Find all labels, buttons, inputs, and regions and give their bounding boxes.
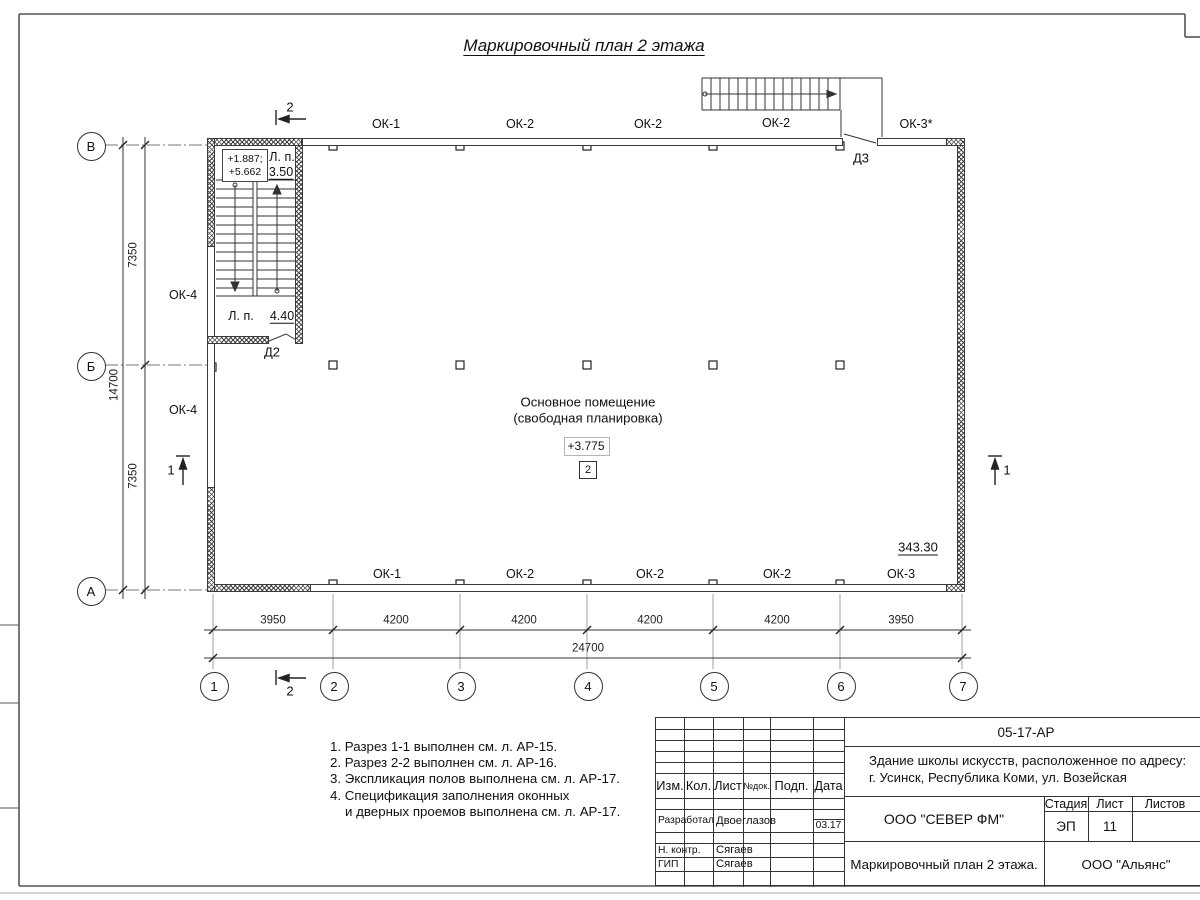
note-1: 1. Разрез 1-1 выполнен см. л. АР-15. [330, 739, 620, 755]
title-block: 05-17-АР Здание школы искусств, располож… [655, 717, 1200, 886]
wall-pier-left-upper [207, 138, 215, 247]
axis-label: 3 [457, 679, 464, 694]
note-4-cont: и дверных проемов выполнена см. л. АР-17… [330, 804, 620, 820]
note-4: 4. Спецификация заполнения оконных [330, 788, 620, 804]
drawing-title: Маркировочный план 2 этажа [463, 36, 704, 56]
project-description: Здание школы искусств, расположенное по … [869, 752, 1186, 786]
elevation-mark: +3.775 [567, 440, 604, 452]
window-mark-left-2: ОК-4 [169, 404, 197, 417]
axis-bubble-b: Б [77, 352, 106, 381]
sheet-value: 11 [1088, 811, 1132, 841]
drawing-sheet: Маркировочный план 2 этажа ОК-1 ОК-2 ОК-… [0, 0, 1200, 900]
wall-bottom [207, 584, 965, 592]
sheet-label: Лист [1088, 796, 1132, 811]
dim-3950-2: 3950 [888, 615, 914, 627]
dim-7350-2: 7350 [128, 463, 140, 489]
wall-pier-top-stair [207, 138, 302, 146]
axis-label: 2 [330, 679, 337, 694]
level-upper: +1.887; [227, 153, 262, 166]
window-mark-top-2: ОК-2 [506, 118, 534, 131]
col-data: Дата [813, 773, 844, 798]
col-list: Лист [713, 773, 743, 798]
stage-label: Стадия [1044, 796, 1088, 811]
axis-label: 7 [959, 679, 966, 694]
window-mark-top-5: ОК-3* [900, 118, 933, 131]
room-area: 343.30 [898, 541, 938, 554]
role-developer: Разработал [658, 809, 714, 832]
axis-label: В [87, 139, 96, 154]
axis-bubble-1: 1 [200, 672, 229, 701]
dim-4200-1: 4200 [383, 615, 409, 627]
notes-block: 1. Разрез 1-1 выполнен см. л. АР-15. 2. … [330, 739, 620, 820]
contractor-name: ООО "Альянс" [1044, 841, 1200, 887]
role-ncontrol: Н. контр. [658, 843, 714, 857]
dim-4200-4: 4200 [764, 615, 790, 627]
door-mark-d2: Д2 [264, 346, 280, 359]
name-developer: Двоеглазов [716, 809, 770, 832]
stage-value: ЭП [1044, 811, 1088, 841]
window-mark-left-1: ОК-4 [169, 289, 197, 302]
window-mark-bottom-1: ОК-1 [373, 568, 401, 581]
dim-total-left: 14700 [109, 369, 121, 401]
axis-bubble-5: 5 [700, 672, 729, 701]
axis-bubble-6: 6 [827, 672, 856, 701]
landing-label-top: Л. п. [269, 151, 294, 164]
dim-total-bottom: 24700 [572, 643, 604, 655]
axis-label: 5 [710, 679, 717, 694]
axis-bubble-a: А [77, 577, 106, 606]
name-gip: Сягаев [716, 857, 770, 871]
note-3: 3. Экспликация полов выполнена см. л. АР… [330, 771, 620, 787]
name-ncontrol: Сягаев [716, 843, 770, 857]
room-name-line2: (свободная планировка) [513, 411, 662, 424]
col-ndok: №док. [743, 773, 770, 798]
axis-bubble-4: 4 [574, 672, 603, 701]
landing-value-bottom: 4.40 [270, 310, 294, 323]
door-mark-d3: Д3 [853, 152, 869, 165]
role-gip: ГИП [658, 857, 714, 871]
axis-label: Б [87, 359, 96, 374]
axis-bubble-3: 3 [447, 672, 476, 701]
col-podp: Подп. [770, 773, 813, 798]
zone-number-box: 2 [579, 461, 597, 479]
sheets-label: Листов [1132, 796, 1198, 811]
date-developer: 03.17 [813, 819, 844, 832]
room-name-line1: Основное помещение [521, 395, 656, 408]
company-name: ООО "СЕВЕР ФМ" [844, 796, 1044, 841]
axis-bubble-v: В [77, 132, 106, 161]
window-mark-bottom-2: ОК-2 [506, 568, 534, 581]
sheet-title: Маркировочный план 2 этажа. [844, 841, 1044, 887]
section-label-1-left: 1 [167, 464, 174, 477]
axis-label: 1 [210, 679, 217, 694]
wall-right-hatched [957, 138, 965, 592]
axis-bubble-2: 2 [320, 672, 349, 701]
doc-code: 05-17-АР [844, 718, 1200, 746]
wall-pier-bottom-left [207, 584, 311, 592]
window-mark-bottom-5: ОК-3 [887, 568, 915, 581]
section-label-1-right: 1 [1003, 464, 1010, 477]
dim-3950-1: 3950 [260, 615, 286, 627]
axis-label: А [87, 584, 96, 599]
project-line1: Здание школы искусств, расположенное по … [869, 752, 1186, 769]
stair-bottom-wall [207, 336, 269, 344]
wall-pier-left-lower [207, 487, 215, 592]
dim-7350-1: 7350 [128, 242, 140, 268]
dim-4200-3: 4200 [637, 615, 663, 627]
zone-number: 2 [585, 464, 591, 476]
window-mark-bottom-3: ОК-2 [636, 568, 664, 581]
axis-label: 4 [584, 679, 591, 694]
landing-value-top: 3.50 [269, 166, 293, 179]
window-mark-bottom-4: ОК-2 [763, 568, 791, 581]
axis-label: 6 [837, 679, 844, 694]
stair-partition-wall [295, 138, 303, 344]
wall-pier-bottom-right [946, 584, 965, 592]
stair-level-marks: +1.887; +5.662 [222, 149, 268, 182]
window-mark-top-3: ОК-2 [634, 118, 662, 131]
section-label-2-bottom: 2 [286, 685, 293, 698]
col-izm: Изм. [656, 773, 684, 798]
wall-pier-top-corner [946, 138, 965, 146]
window-mark-top-1: ОК-1 [372, 118, 400, 131]
window-mark-top-4: ОК-2 [762, 117, 790, 130]
note-2: 2. Разрез 2-2 выполнен см. л. АР-16. [330, 755, 620, 771]
section-label-2-top: 2 [286, 101, 293, 114]
col-kol: Кол. [684, 773, 713, 798]
axis-bubble-7: 7 [949, 672, 978, 701]
landing-label-bottom: Л. п. [228, 310, 253, 323]
level-lower: +5.662 [229, 166, 261, 179]
project-line2: г. Усинск, Республика Коми, ул. Возейска… [869, 769, 1186, 786]
dim-4200-2: 4200 [511, 615, 537, 627]
